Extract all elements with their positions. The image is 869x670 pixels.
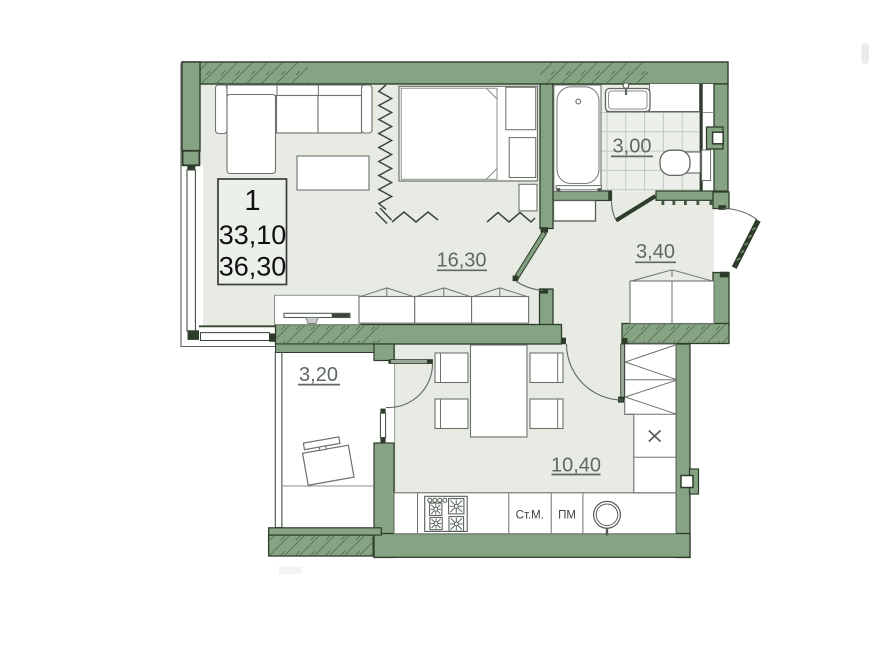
- svg-text:1: 1: [244, 185, 260, 217]
- svg-text:10,40: 10,40: [551, 455, 601, 477]
- svg-text:Ст.М.: Ст.М.: [516, 510, 544, 522]
- svg-text:ПМ: ПМ: [558, 510, 576, 522]
- svg-text:36,30: 36,30: [219, 252, 287, 282]
- svg-text:3,00: 3,00: [613, 136, 652, 158]
- svg-text:16,30: 16,30: [436, 250, 486, 272]
- svg-text:3,20: 3,20: [299, 364, 338, 386]
- svg-text:33,10: 33,10: [219, 220, 287, 250]
- svg-text:3,40: 3,40: [636, 241, 675, 263]
